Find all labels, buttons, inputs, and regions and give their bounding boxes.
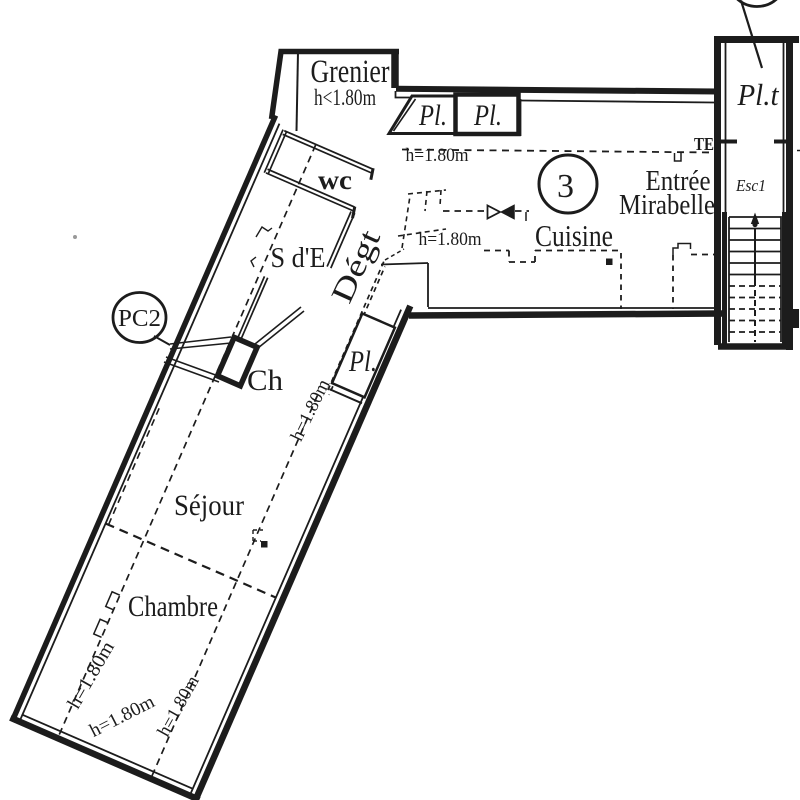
svg-text:h=1.80m: h=1.80m: [406, 145, 469, 166]
svg-text:Esc1: Esc1: [735, 176, 766, 195]
svg-text:Pl.: Pl.: [418, 99, 447, 132]
svg-text:S d'E: S d'E: [271, 243, 326, 274]
svg-text:Pl.: Pl.: [473, 99, 502, 132]
svg-text:3: 3: [557, 168, 574, 205]
svg-text:h=1.80m: h=1.80m: [419, 229, 482, 250]
svg-text:wc: wc: [318, 165, 352, 195]
svg-text:h<1.80m: h<1.80m: [314, 85, 376, 110]
svg-text:Séjour: Séjour: [174, 489, 244, 522]
svg-text:PC2: PC2: [118, 306, 161, 332]
svg-text:Ch: Ch: [247, 364, 283, 397]
svg-text:TE: TE: [694, 134, 714, 154]
svg-text:Mirabelle: Mirabelle: [619, 190, 715, 221]
svg-text:Cuisine: Cuisine: [535, 218, 613, 253]
svg-text:Pl.t: Pl.t: [737, 77, 780, 112]
svg-text:Chambre: Chambre: [128, 590, 218, 623]
svg-text:Pl.: Pl.: [348, 345, 377, 378]
